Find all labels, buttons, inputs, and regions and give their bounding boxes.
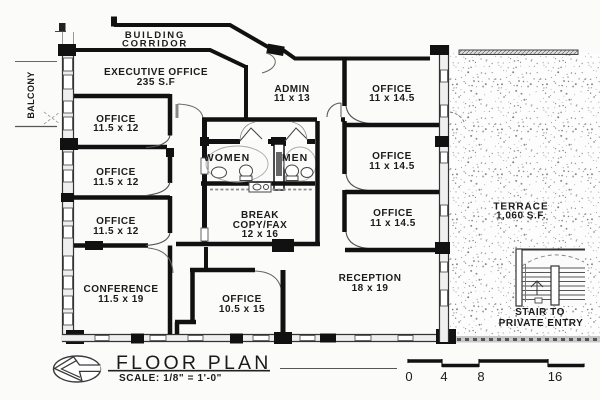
svg-text:11.5 x 12: 11.5 x 12	[93, 226, 139, 237]
svg-text:11.5 x 12: 11.5 x 12	[93, 177, 139, 188]
svg-text:11 x 14.5: 11 x 14.5	[370, 218, 416, 229]
svg-text:11 x 14.5: 11 x 14.5	[369, 93, 415, 104]
svg-text:CORRIDOR: CORRIDOR	[122, 39, 188, 50]
svg-text:11 x 14.5: 11 x 14.5	[369, 161, 415, 172]
svg-text:11 x 13: 11 x 13	[274, 93, 310, 104]
svg-text:WOMEN: WOMEN	[204, 152, 250, 164]
svg-text:0: 0	[405, 369, 412, 384]
svg-text:18 x 19: 18 x 19	[352, 283, 389, 294]
svg-text:STAIR TO: STAIR TO	[515, 307, 565, 318]
svg-text:12 x 16: 12 x 16	[242, 229, 279, 240]
svg-text:1,060 S.F.: 1,060 S.F.	[496, 211, 546, 222]
svg-text:11.5 x 19: 11.5 x 19	[98, 294, 144, 305]
svg-text:PRIVATE ENTRY: PRIVATE ENTRY	[499, 318, 584, 329]
svg-text:SCALE: 1/8" = 1'-0": SCALE: 1/8" = 1'-0"	[119, 373, 222, 384]
svg-text:4: 4	[440, 369, 447, 384]
svg-text:MEN: MEN	[282, 152, 308, 164]
svg-text:BALCONY: BALCONY	[26, 71, 36, 118]
svg-text:11.5 x 12: 11.5 x 12	[93, 123, 139, 134]
svg-text:10.5 x 15: 10.5 x 15	[219, 304, 265, 315]
svg-text:16: 16	[548, 369, 562, 384]
svg-text:8: 8	[477, 369, 484, 384]
svg-text:235 S.F: 235 S.F	[137, 77, 176, 88]
